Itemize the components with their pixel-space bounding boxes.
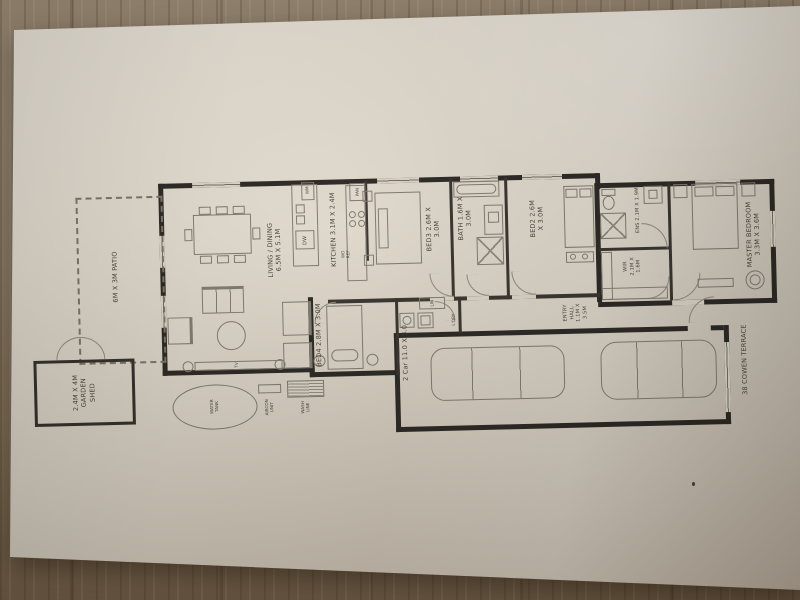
- door-swing: [511, 271, 536, 296]
- bedside-table-icon: [366, 354, 378, 366]
- pantry-label: PAN: [355, 188, 361, 196]
- pillow-icon: [694, 186, 713, 196]
- sink-icon: [296, 204, 305, 213]
- sofa-icon: [202, 286, 245, 314]
- door-swing: [641, 222, 668, 249]
- bedside-table-icon: [673, 184, 687, 198]
- ensuite-label: ENS 2.1M X 1.9M: [634, 187, 642, 233]
- wall: [310, 370, 400, 377]
- pillow-icon: [565, 189, 577, 198]
- paper-sheet: 6M X 3M PATIO 2.4M X 4M GARDEN SHED WATE…: [0, 0, 800, 600]
- bath-label: BATH 1.6M X 3.0M: [456, 196, 474, 240]
- door-opening: [467, 296, 489, 301]
- wardrobe-shelf-icon: [602, 286, 668, 300]
- bedside-table-icon: [362, 191, 372, 202]
- patio-outline: [75, 196, 166, 365]
- master-bedroom-label: MASTER BEDROOM 3.3M X 3.6M: [744, 201, 762, 267]
- armchair-icon: [167, 317, 193, 345]
- shower-icon: [476, 236, 504, 265]
- chair-icon: [199, 207, 211, 215]
- entry-hall-label: ENTRY HALL 1.1M X 3.5M: [562, 303, 588, 322]
- shed-door-swing: [56, 337, 82, 361]
- bed3-label: BED3 2.6M X 3.0M: [424, 207, 442, 252]
- basin-icon: [488, 212, 499, 223]
- kitchen-label: KITCHEN 3.1M X 2.4M: [328, 192, 338, 267]
- paper-speck: [692, 482, 695, 486]
- chair-icon: [233, 206, 245, 214]
- chair-icon: [216, 206, 228, 214]
- aircon-unit-icon: [258, 384, 281, 394]
- window: [377, 177, 419, 183]
- wall: [458, 297, 462, 334]
- dining-table-icon: [193, 214, 252, 255]
- pillow-icon: [579, 188, 591, 197]
- coffee-table-icon: [216, 321, 246, 351]
- chair-icon: [200, 256, 212, 264]
- wall: [328, 293, 600, 304]
- shed-label: 2.4M X 4M GARDEN SHED: [71, 374, 97, 411]
- shower-icon: [600, 212, 627, 239]
- wall: [504, 177, 510, 299]
- chair-icon: [234, 255, 246, 263]
- tv-label: TV: [234, 362, 240, 368]
- living-dining-label: LIVING / DINING 6.5M X 5.1M: [266, 222, 284, 277]
- wall: [711, 325, 724, 330]
- aircon-label: AIRCON UNIT: [264, 399, 275, 415]
- window-seat-icon: [698, 278, 734, 288]
- sink-icon: [296, 215, 305, 224]
- photo-of-floor-plan: 6M X 3M PATIO 2.4M X 4M GARDEN SHED WATE…: [0, 0, 800, 600]
- patio-label: 6M X 3M PATIO: [111, 251, 121, 302]
- wir-label: WIR 2.1M X 1.6M: [622, 257, 642, 276]
- basin-icon: [648, 190, 657, 199]
- wall: [394, 326, 688, 338]
- dishwasher-label: DW: [302, 236, 309, 245]
- window: [770, 211, 776, 247]
- chair-icon: [252, 227, 260, 239]
- appliance-labels: WO REF: [340, 250, 351, 258]
- window: [192, 182, 240, 188]
- linen-label: LIN: [429, 300, 435, 307]
- water-tank-label: WATER TANK: [209, 399, 220, 414]
- floor-plan: 6M X 3M PATIO 2.4M X 4M GARDEN SHED WATE…: [11, 141, 788, 460]
- door-swing: [466, 274, 489, 297]
- wash-line-icon: [287, 380, 324, 398]
- bed4-label: BED4 2.8M X 3.0M: [314, 303, 324, 367]
- paper-shadow: 6M X 3M PATIO 2.4M X 4M GARDEN SHED WATE…: [0, 0, 800, 600]
- bed2-label: BED2 2.6M X 3.0M: [528, 200, 546, 238]
- street-address-label: 38 COWEN TERRACE: [739, 324, 749, 395]
- garage-label: 2 Car 11.0 X 3.0: [400, 325, 410, 381]
- pillow-icon: [331, 349, 358, 362]
- toilet-bowl-icon: [603, 196, 615, 210]
- door-opening: [512, 295, 536, 300]
- wall: [396, 419, 731, 432]
- laundry-label: L'DRY: [451, 314, 457, 326]
- chair-icon: [184, 229, 192, 241]
- bathtub-inner: [456, 184, 496, 195]
- garage-door-opening: [724, 342, 731, 412]
- wm-label: WM: [304, 186, 310, 194]
- washing-machine-inner: [420, 315, 430, 325]
- car-icon: [430, 345, 565, 401]
- wall: [667, 183, 672, 248]
- bedside-table-icon: [364, 255, 374, 266]
- armchair-icon: [282, 301, 312, 336]
- car-icon: [600, 339, 717, 400]
- chair-icon: [217, 255, 229, 263]
- pillow-icon: [715, 186, 734, 196]
- wash-line-label: WASH LINE: [300, 401, 311, 414]
- pillow-icon: [378, 208, 389, 248]
- door-swing: [429, 273, 454, 298]
- bedside-table-icon: [741, 182, 755, 196]
- window: [522, 174, 562, 180]
- armchair-icon: [283, 342, 313, 369]
